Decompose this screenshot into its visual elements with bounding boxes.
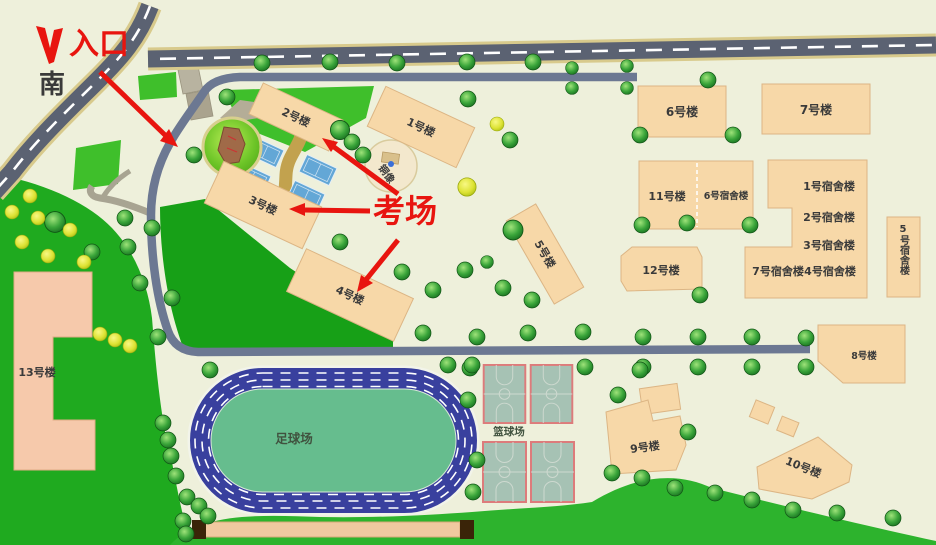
tree-icon: [465, 484, 481, 500]
tree-icon: [45, 212, 66, 233]
yellow-bush-icon: [108, 333, 122, 347]
tree-icon: [503, 220, 523, 240]
tree-icon: [415, 325, 431, 341]
tree-icon: [163, 448, 179, 464]
yellow-bush-icon: [490, 117, 504, 131]
building-8-label: 8号楼: [851, 350, 877, 362]
tree-icon: [692, 287, 708, 303]
yellow-bush-icon: [63, 223, 77, 237]
bronze-statue: [365, 140, 417, 192]
tree-icon: [457, 262, 473, 278]
tree-icon: [440, 357, 456, 373]
tree-icon: [566, 62, 579, 75]
campus-map-canvas: 足球场 篮球场 铜像 1号楼 2号楼 3号楼 4号楼 5号楼 6号楼 7号楼: [0, 0, 936, 545]
tree-icon: [186, 147, 202, 163]
building-7-label: 7号楼: [800, 102, 832, 117]
tree-icon: [520, 325, 536, 341]
grandstand: [192, 520, 474, 539]
tree-icon: [610, 387, 626, 403]
tree-icon: [885, 510, 901, 526]
yellow-bush-icon: [23, 189, 37, 203]
dorm-6-label: 6号宿舍楼: [704, 190, 749, 202]
tree-icon: [120, 239, 136, 255]
tree-icon: [566, 82, 579, 95]
dorm-1-label: 1号宿舍楼: [803, 179, 855, 193]
tree-icon: [150, 329, 166, 345]
tree-icon: [160, 432, 176, 448]
tree-icon: [464, 357, 480, 373]
tree-icon: [621, 60, 634, 73]
building-12-label: 12号楼: [642, 263, 679, 277]
south-label: 南: [39, 70, 65, 100]
tree-icon: [344, 134, 360, 150]
building-13-label: 13号楼: [18, 365, 55, 379]
tree-icon: [425, 282, 441, 298]
tree-icon: [634, 470, 650, 486]
tree-icon: [132, 275, 148, 291]
dorm-4-label: 4号宿舍楼: [804, 264, 856, 278]
dorm-3-label: 3号宿舍楼: [803, 238, 855, 252]
tree-icon: [744, 329, 760, 345]
tree-icon: [155, 415, 171, 431]
tree-icon: [469, 329, 485, 345]
tree-icon: [707, 485, 723, 501]
building-11-label: 11号楼: [648, 189, 685, 203]
tree-icon: [117, 210, 133, 226]
tree-icon: [495, 280, 511, 296]
tree-icon: [394, 264, 410, 280]
tree-icon: [785, 502, 801, 518]
exam-site-label: 考场: [373, 192, 437, 230]
building-6-label: 6号楼: [666, 104, 698, 119]
lawn-gate-1: [138, 72, 177, 100]
yellow-bush-icon: [123, 339, 137, 353]
running-track: [189, 367, 478, 514]
exam-arrow-building3: [305, 210, 370, 211]
tree-icon: [502, 132, 518, 148]
tree-icon: [200, 508, 216, 524]
basketball-court-label: 篮球场: [492, 425, 525, 438]
tree-icon: [460, 392, 476, 408]
tree-icon: [168, 468, 184, 484]
yellow-bush-icon: [458, 178, 476, 196]
tree-icon: [202, 362, 218, 378]
entrance-label: 入口: [69, 27, 129, 62]
yellow-bush-icon: [31, 211, 45, 225]
tree-icon: [635, 329, 651, 345]
basketball-court-icon: [483, 442, 526, 502]
tree-icon: [680, 424, 696, 440]
tree-icon: [798, 330, 814, 346]
tree-icon: [332, 234, 348, 250]
tree-icon: [164, 290, 180, 306]
tree-icon: [690, 329, 706, 345]
dorm-2-label: 2号宿舍楼: [803, 210, 855, 224]
tree-icon: [634, 217, 650, 233]
tree-icon: [679, 215, 695, 231]
tree-icon: [524, 292, 540, 308]
tree-icon: [469, 452, 485, 468]
yellow-bush-icon: [41, 249, 55, 263]
tree-icon: [700, 72, 716, 88]
tree-icon: [742, 217, 758, 233]
dorm-7-label: 7号宿舍楼: [752, 264, 804, 278]
tree-icon: [690, 359, 706, 375]
tree-icon: [829, 505, 845, 521]
campus-map: 足球场 篮球场 铜像 1号楼 2号楼 3号楼 4号楼 5号楼 6号楼 7号楼: [0, 0, 936, 545]
basketball-court-icon: [531, 442, 574, 502]
tree-icon: [725, 127, 741, 143]
yellow-bush-icon: [5, 205, 19, 219]
tree-icon: [355, 147, 371, 163]
tree-icon: [481, 256, 494, 269]
yellow-bush-icon: [93, 327, 107, 341]
tree-icon: [322, 54, 338, 70]
tree-icon: [459, 54, 475, 70]
tree-icon: [575, 324, 591, 340]
tree-icon: [577, 359, 593, 375]
tree-icon: [254, 55, 270, 71]
gatehouse-building: [178, 66, 203, 94]
tree-icon: [632, 362, 648, 378]
tree-icon: [632, 127, 648, 143]
tree-icon: [144, 220, 160, 236]
tree-icon: [604, 465, 620, 481]
tree-icon: [744, 359, 760, 375]
tree-icon: [178, 526, 194, 542]
yellow-bush-icon: [15, 235, 29, 249]
yellow-bush-icon: [77, 255, 91, 269]
tree-icon: [219, 89, 235, 105]
tree-icon: [667, 480, 683, 496]
tree-icon: [798, 359, 814, 375]
tree-icon: [460, 91, 476, 107]
basketball-court-icon: [484, 365, 526, 423]
football-field-label: 足球场: [275, 431, 313, 446]
tree-icon: [744, 492, 760, 508]
basketball-court-icon: [531, 365, 573, 423]
tree-icon: [389, 55, 405, 71]
tree-icon: [525, 54, 541, 70]
tree-icon: [621, 82, 634, 95]
